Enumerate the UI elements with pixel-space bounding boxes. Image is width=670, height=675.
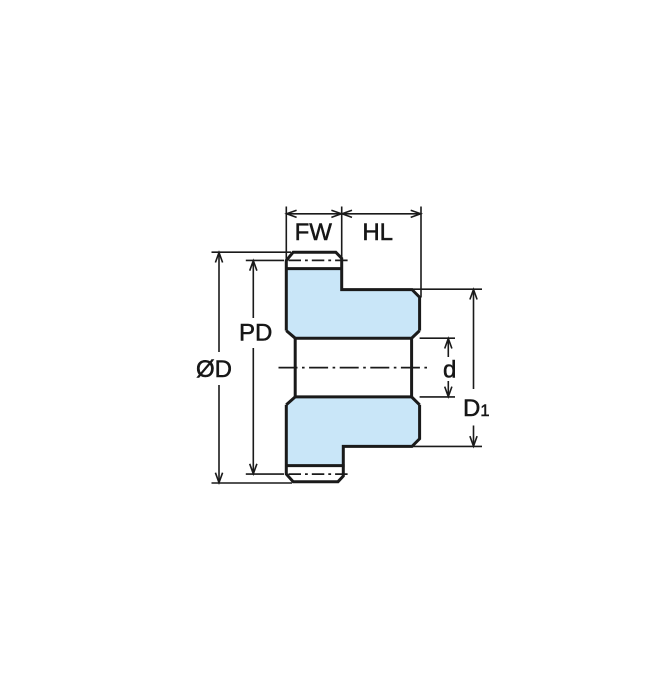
- svg-text:FW: FW: [295, 219, 333, 246]
- svg-text:ØD: ØD: [196, 356, 232, 383]
- svg-text:HL: HL: [362, 219, 393, 246]
- svg-text:d: d: [443, 357, 456, 384]
- svg-text:PD: PD: [239, 320, 272, 347]
